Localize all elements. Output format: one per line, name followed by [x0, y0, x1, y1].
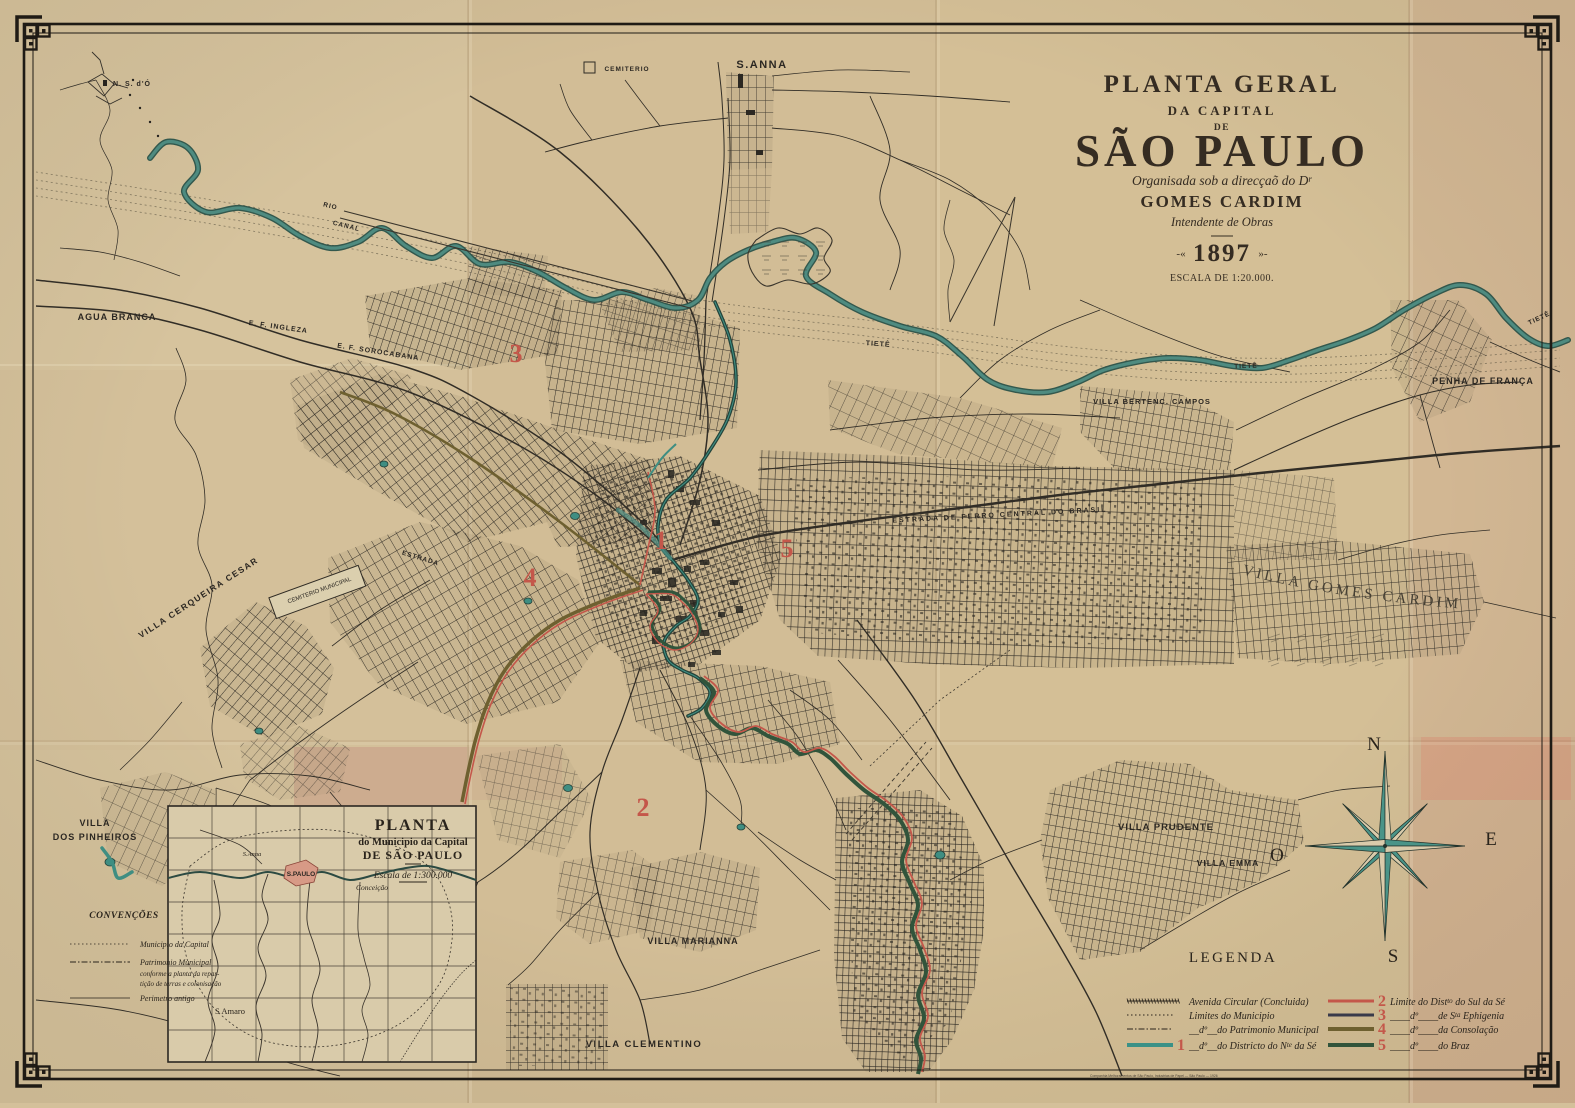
svg-text:GOMES CARDIM: GOMES CARDIM [1140, 192, 1303, 211]
svg-text:CONVENÇÕES: CONVENÇÕES [89, 909, 158, 921]
svg-text:4: 4 [1378, 1021, 1386, 1038]
svg-text:Perimetro antigo: Perimetro antigo [139, 994, 195, 1003]
svg-text:do Municipio da Capital: do Municipio da Capital [358, 837, 467, 848]
svg-text:____dº____do Braz: ____dº____do Braz [1389, 1041, 1470, 1052]
svg-text:conforme a planta da repar-: conforme a planta da repar- [140, 970, 220, 978]
svg-text:S.PAULO: S.PAULO [287, 871, 315, 878]
svg-text:PENHA DE FRANÇA: PENHA DE FRANÇA [1432, 376, 1534, 386]
svg-text:Limites do Municipio: Limites do Municipio [1188, 1011, 1275, 1022]
svg-text:5: 5 [1378, 1037, 1386, 1054]
svg-text:VILLA PRUDENTE: VILLA PRUDENTE [1118, 822, 1214, 833]
svg-text:S.ANNA: S.ANNA [736, 59, 787, 71]
svg-text:Limite do Distto do Sul da Sé: Limite do Distto do Sul da Sé [1389, 997, 1505, 1008]
svg-text:DE SÃO PAULO: DE SÃO PAULO [363, 848, 463, 862]
svg-text:__dº__do Districto do Nte da: __dº__do Districto do Nte da Sé [1188, 1041, 1317, 1052]
svg-text:VILLA BERTENC. CAMPOS: VILLA BERTENC. CAMPOS [1093, 397, 1211, 406]
svg-text:-«: -« [1176, 248, 1186, 260]
svg-text:____dº____de Sta Ephigenia: ____dº____de Sta Ephigenia [1389, 1011, 1504, 1022]
svg-text:N: N [1367, 734, 1381, 755]
svg-text:Companhia Melhoramentos de São: Companhia Melhoramentos de São Paulo, In… [1090, 1074, 1218, 1078]
svg-text:____dº____da Consolação: ____dº____da Consolação [1389, 1025, 1498, 1036]
svg-text:tição de terras e colonisação: tição de terras e colonisação [140, 980, 222, 988]
svg-text:5: 5 [781, 534, 794, 563]
svg-text:3: 3 [510, 339, 523, 368]
svg-text:Intendente de Obras: Intendente de Obras [1170, 215, 1273, 229]
svg-text:1897: 1897 [1193, 240, 1251, 267]
svg-text:__dº__do Patrimonio Municipal: __dº__do Patrimonio Municipal [1188, 1025, 1319, 1036]
svg-text:CEMITERIO: CEMITERIO [604, 66, 649, 73]
svg-text:S Amaro: S Amaro [215, 1006, 245, 1016]
svg-text:VILLA CLEMENTINO: VILLA CLEMENTINO [586, 1039, 703, 1050]
svg-text:VILLA: VILLA [80, 818, 111, 828]
svg-text:E: E [1485, 829, 1497, 850]
svg-text:PLANTA GERAL: PLANTA GERAL [1104, 71, 1341, 98]
svg-text:1: 1 [1177, 1037, 1185, 1054]
svg-text:DOS PINHEIROS: DOS PINHEIROS [53, 832, 138, 842]
svg-text:2: 2 [637, 793, 650, 822]
svg-text:AGUA BRANCA: AGUA BRANCA [78, 312, 157, 322]
svg-text:SÃO PAULO: SÃO PAULO [1075, 126, 1369, 176]
svg-text:DA CAPITAL: DA CAPITAL [1168, 103, 1277, 118]
svg-text:PLANTA: PLANTA [375, 817, 452, 834]
svg-text:Patrimonio Municipal: Patrimonio Municipal [139, 958, 212, 967]
svg-text:LEGENDA: LEGENDA [1189, 950, 1277, 966]
svg-text:S.Anna: S.Anna [243, 851, 262, 858]
svg-text:Escala de 1:300.000: Escala de 1:300.000 [373, 871, 453, 881]
svg-text:»-: »- [1258, 248, 1268, 260]
svg-text:1: 1 [655, 526, 668, 555]
svg-text:O: O [1270, 845, 1284, 866]
svg-text:VILLA MARIANNA: VILLA MARIANNA [647, 936, 738, 946]
svg-text:VILLA EMMA: VILLA EMMA [1197, 858, 1260, 868]
svg-text:Organisada sob a direcçaõ do D: Organisada sob a direcçaõ do Dr [1132, 173, 1312, 188]
svg-text:N. S. d'Ó: N. S. d'Ó [113, 79, 151, 88]
svg-text:4: 4 [524, 563, 537, 592]
svg-text:S: S [1388, 946, 1399, 967]
svg-text:Avenida Circular (Concluida): Avenida Circular (Concluida) [1188, 997, 1309, 1008]
svg-text:Conceição: Conceição [356, 883, 388, 892]
svg-text:ESCALA DE 1:20.000.: ESCALA DE 1:20.000. [1170, 273, 1274, 284]
svg-text:Municipio da Capital: Municipio da Capital [139, 940, 210, 949]
